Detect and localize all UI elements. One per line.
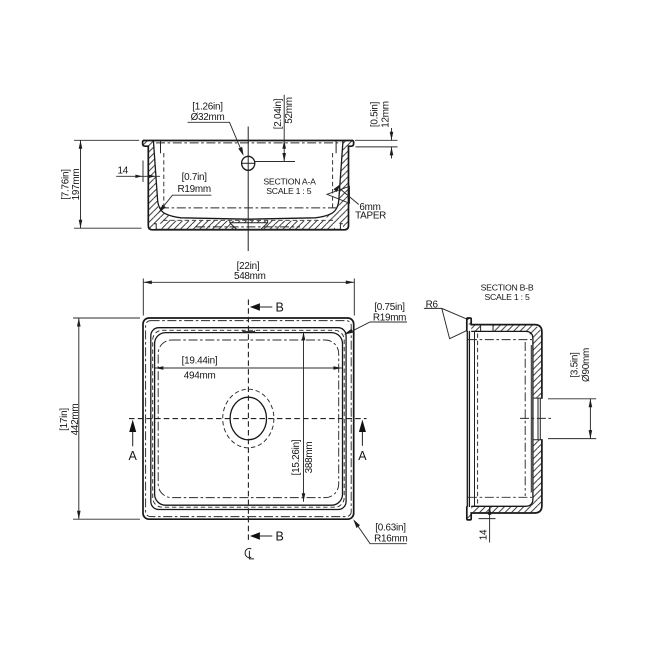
svg-text:B: B xyxy=(276,530,284,544)
svg-text:SECTION B-B: SECTION B-B xyxy=(481,282,534,292)
svg-text:442mm: 442mm xyxy=(70,404,81,436)
svg-text:[22in]: [22in] xyxy=(237,261,260,272)
svg-text:388mm: 388mm xyxy=(304,442,315,474)
svg-text:[0.75in]: [0.75in] xyxy=(374,302,405,313)
svg-text:[0.5in]: [0.5in] xyxy=(370,101,381,127)
svg-text:SCALE 1 : 5: SCALE 1 : 5 xyxy=(266,186,311,196)
svg-text:A: A xyxy=(129,449,138,463)
svg-text:14: 14 xyxy=(118,165,129,176)
svg-text:52mm: 52mm xyxy=(284,97,295,123)
svg-text:[17in]: [17in] xyxy=(59,408,70,431)
svg-text:[0.7in]: [0.7in] xyxy=(182,172,208,183)
svg-text:[1.26in]: [1.26in] xyxy=(192,101,223,112)
svg-text:R19mm: R19mm xyxy=(178,184,211,195)
svg-text:Ø90mm: Ø90mm xyxy=(581,348,592,382)
svg-text:B: B xyxy=(276,301,284,315)
svg-text:197mm: 197mm xyxy=(71,169,82,201)
svg-text:548mm: 548mm xyxy=(234,271,266,282)
svg-text:[19.44in]: [19.44in] xyxy=(182,355,218,366)
svg-text:14: 14 xyxy=(479,529,490,540)
svg-text:[2.04in]: [2.04in] xyxy=(273,98,284,129)
svg-text:494mm: 494mm xyxy=(184,371,216,382)
svg-text:[3.5in]: [3.5in] xyxy=(570,352,581,378)
svg-text:A: A xyxy=(358,449,367,463)
svg-text:Ø32mm: Ø32mm xyxy=(191,112,225,123)
svg-text:[7.76in]: [7.76in] xyxy=(61,169,72,200)
svg-text:SECTION A-A: SECTION A-A xyxy=(263,176,316,186)
svg-text:SCALE 1 : 5: SCALE 1 : 5 xyxy=(484,292,529,302)
svg-text:R16mm: R16mm xyxy=(374,534,407,545)
svg-text:[0.63in]: [0.63in] xyxy=(375,522,406,533)
svg-text:12mm: 12mm xyxy=(381,101,392,127)
svg-text:TAPER: TAPER xyxy=(355,211,386,222)
svg-text:[15.26in]: [15.26in] xyxy=(291,439,302,475)
